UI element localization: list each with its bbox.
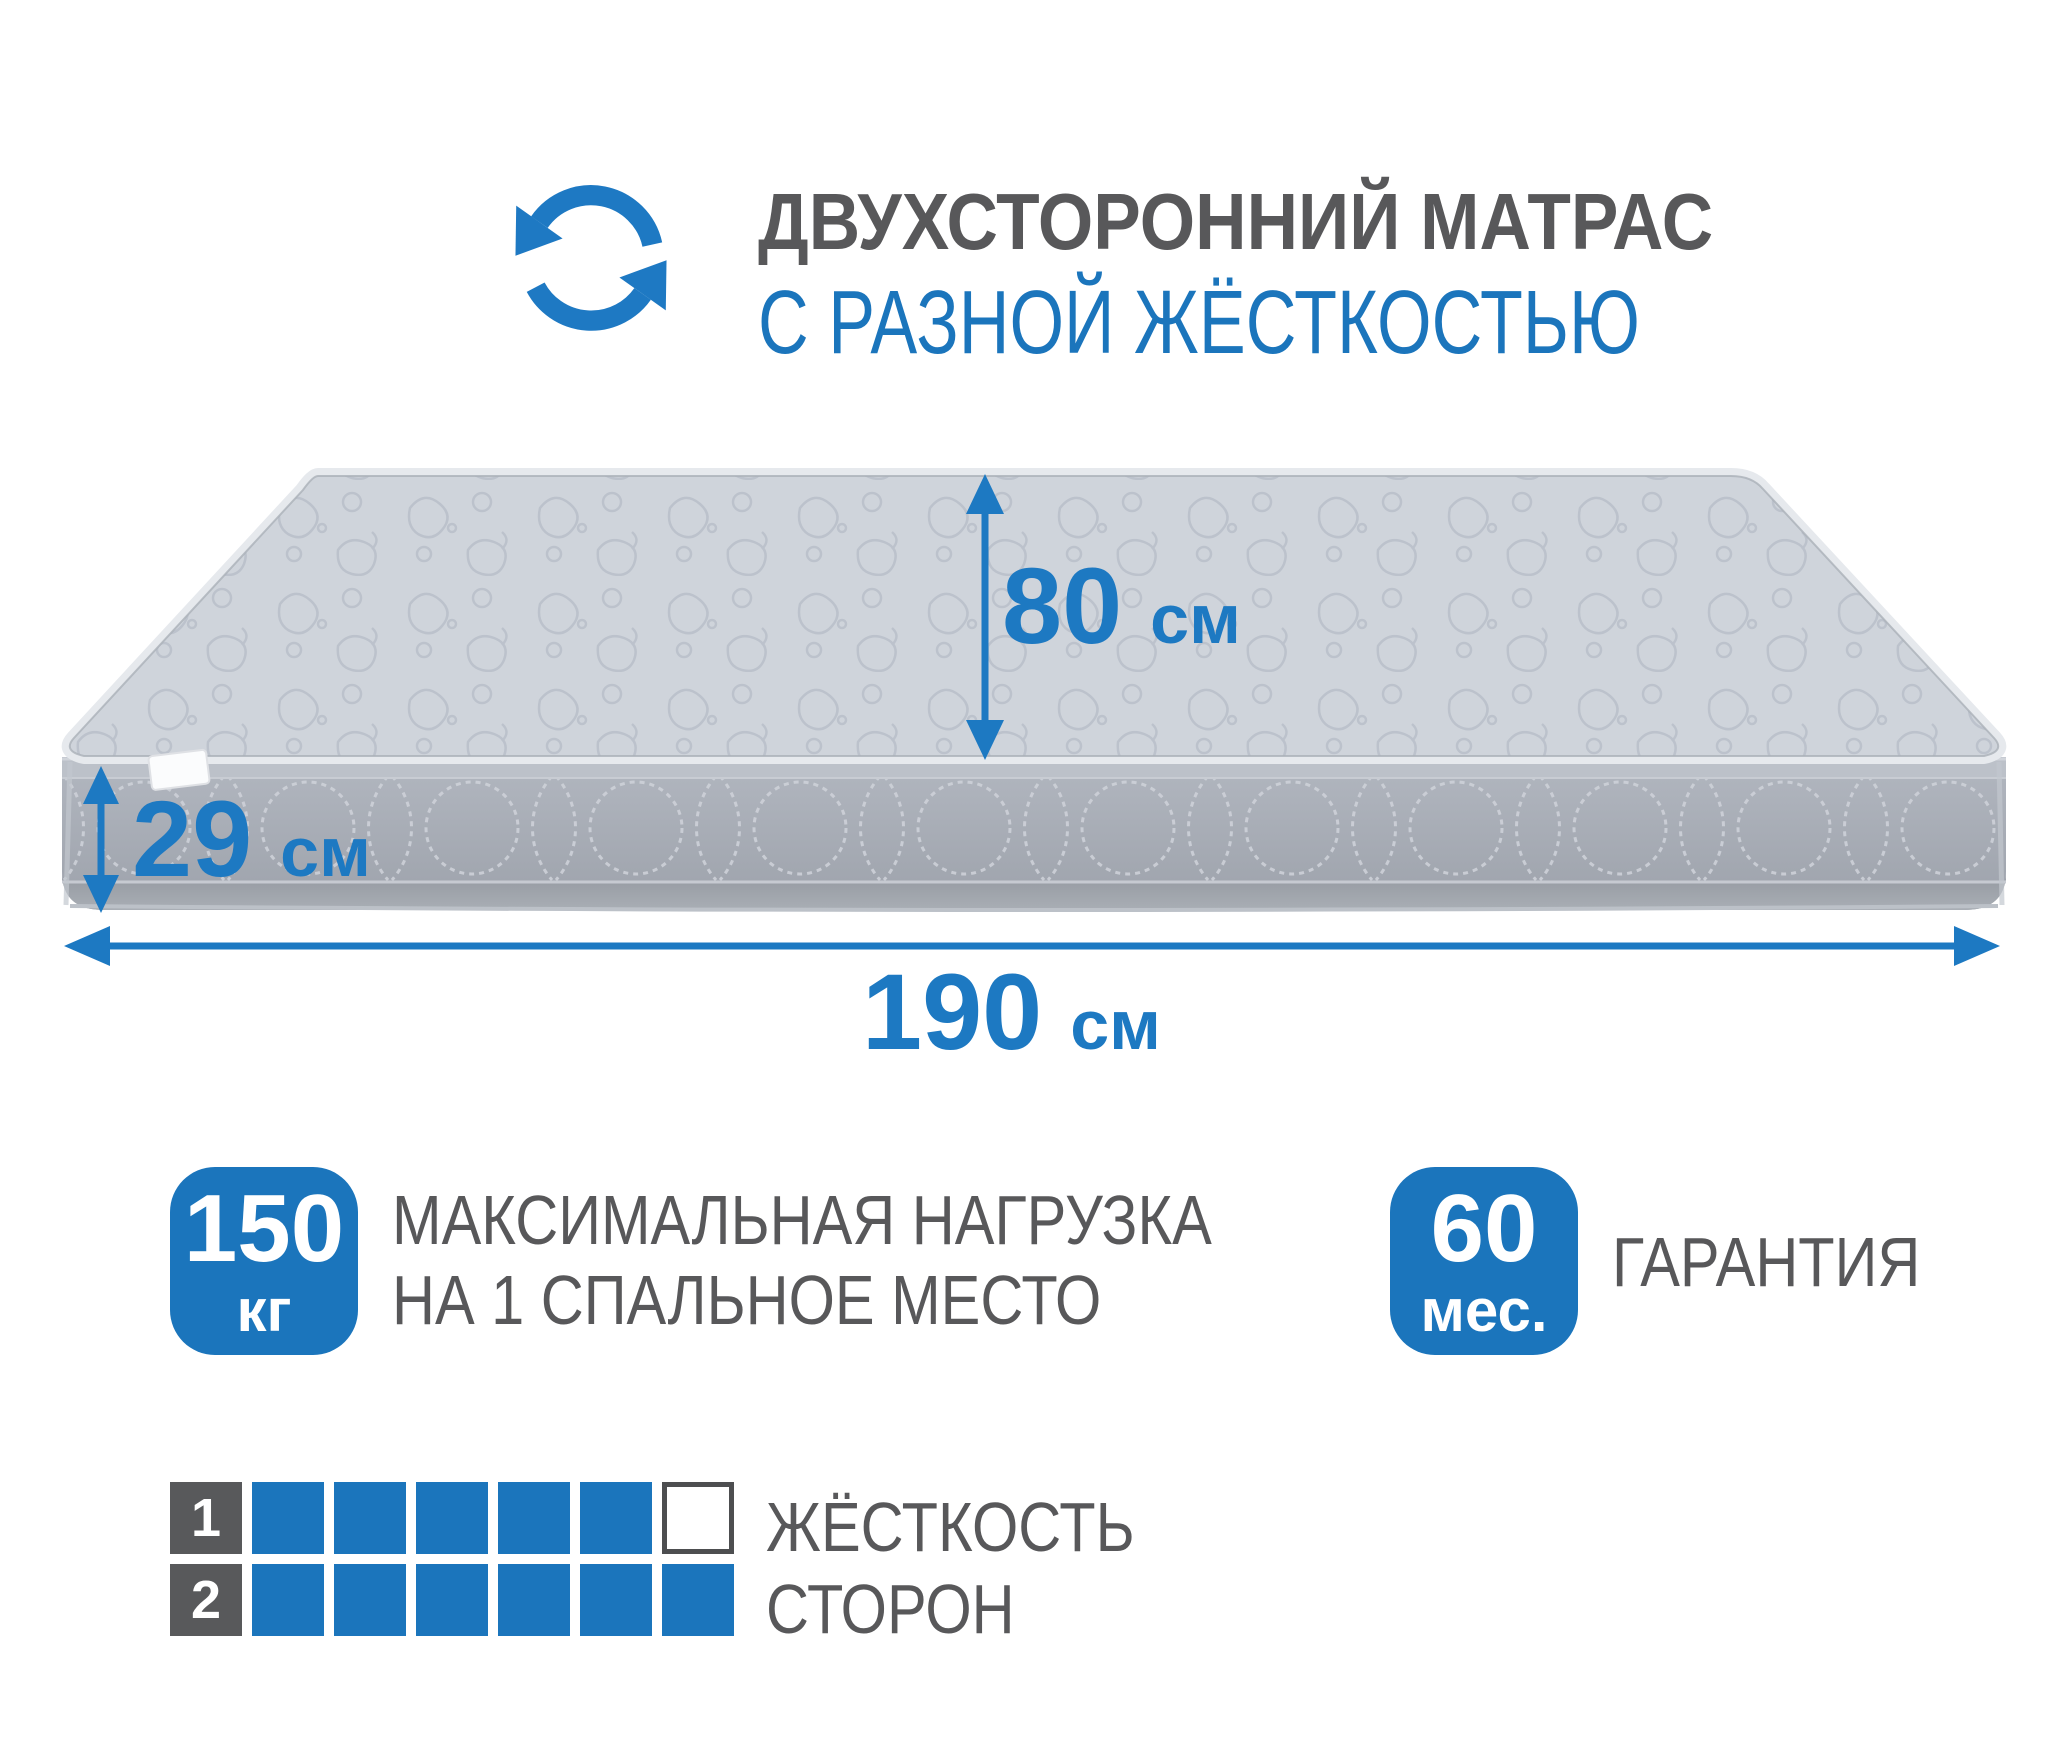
length-value: 190 bbox=[862, 958, 1042, 1066]
width-value: 80 bbox=[1002, 552, 1122, 660]
warranty-unit: мес. bbox=[1420, 1279, 1547, 1342]
max-load-unit: кг bbox=[236, 1279, 291, 1342]
width-arrow bbox=[966, 474, 1004, 760]
firmness-row-side2: 2 bbox=[170, 1564, 734, 1636]
max-load-badge: 150 кг bbox=[170, 1167, 358, 1355]
page-title: ДВУХСТОРОННИЙ МАТРАС С РАЗНОЙ ЖЁСТКОСТЬЮ bbox=[758, 182, 1889, 368]
warranty-label-wrap: ГАРАНТИЯ bbox=[1612, 1222, 1975, 1302]
warranty-badge: 60 мес. bbox=[1390, 1167, 1578, 1355]
thickness-arrow bbox=[83, 766, 119, 913]
max-load-label: МАКСИМАЛЬНАЯ НАГРУЗКА НА 1 СПАЛЬНОЕ МЕСТ… bbox=[392, 1180, 1356, 1340]
max-load-label-line2: НА 1 СПАЛЬНОЕ МЕСТО bbox=[392, 1260, 1101, 1340]
title-line-2: С РАЗНОЙ ЖЁСТКОСТЬЮ bbox=[758, 278, 1640, 368]
firmness-squares-side2 bbox=[252, 1564, 734, 1636]
length-dimension-label: 190 см bbox=[862, 958, 1161, 1066]
thickness-dimension-label: 29 см bbox=[132, 785, 371, 893]
max-load-value: 150 bbox=[184, 1181, 344, 1277]
thickness-value: 29 bbox=[132, 785, 252, 893]
firmness-cell-filled bbox=[662, 1564, 734, 1636]
firmness-cell-filled bbox=[416, 1482, 488, 1554]
firmness-side-number: 2 bbox=[170, 1564, 242, 1636]
width-unit: см bbox=[1150, 584, 1241, 654]
rotate-arrows-icon bbox=[498, 172, 684, 344]
length-unit: см bbox=[1070, 990, 1161, 1060]
firmness-label: ЖЁСТКОСТЬ СТОРОН bbox=[766, 1486, 1200, 1650]
firmness-label-line1: ЖЁСТКОСТЬ bbox=[766, 1486, 1135, 1568]
infographic-canvas: ДВУХСТОРОННИЙ МАТРАС С РАЗНОЙ ЖЁСТКОСТЬЮ bbox=[0, 0, 2048, 1757]
firmness-cell-filled bbox=[334, 1564, 406, 1636]
firmness-cell-filled bbox=[498, 1482, 570, 1554]
firmness-side-number: 1 bbox=[170, 1482, 242, 1554]
firmness-cell-filled bbox=[580, 1482, 652, 1554]
width-dimension-label: 80 см bbox=[1002, 552, 1241, 660]
thickness-unit: см bbox=[280, 817, 371, 887]
max-load-label-line1: МАКСИМАЛЬНАЯ НАГРУЗКА bbox=[392, 1180, 1212, 1260]
firmness-row-side1: 1 bbox=[170, 1482, 734, 1554]
firmness-cell-filled bbox=[580, 1564, 652, 1636]
firmness-cell-filled bbox=[334, 1482, 406, 1554]
warranty-value: 60 bbox=[1431, 1181, 1538, 1277]
firmness-cell-filled bbox=[252, 1482, 324, 1554]
firmness-cell-filled bbox=[498, 1564, 570, 1636]
warranty-label: ГАРАНТИЯ bbox=[1612, 1222, 1920, 1302]
firmness-squares-side1 bbox=[252, 1482, 734, 1554]
firmness-cell-filled bbox=[416, 1564, 488, 1636]
firmness-cell-empty bbox=[662, 1482, 734, 1554]
title-line-1: ДВУХСТОРОННИЙ МАТРАС bbox=[758, 182, 1713, 262]
firmness-cell-filled bbox=[252, 1564, 324, 1636]
firmness-label-line2: СТОРОН bbox=[766, 1568, 1015, 1650]
